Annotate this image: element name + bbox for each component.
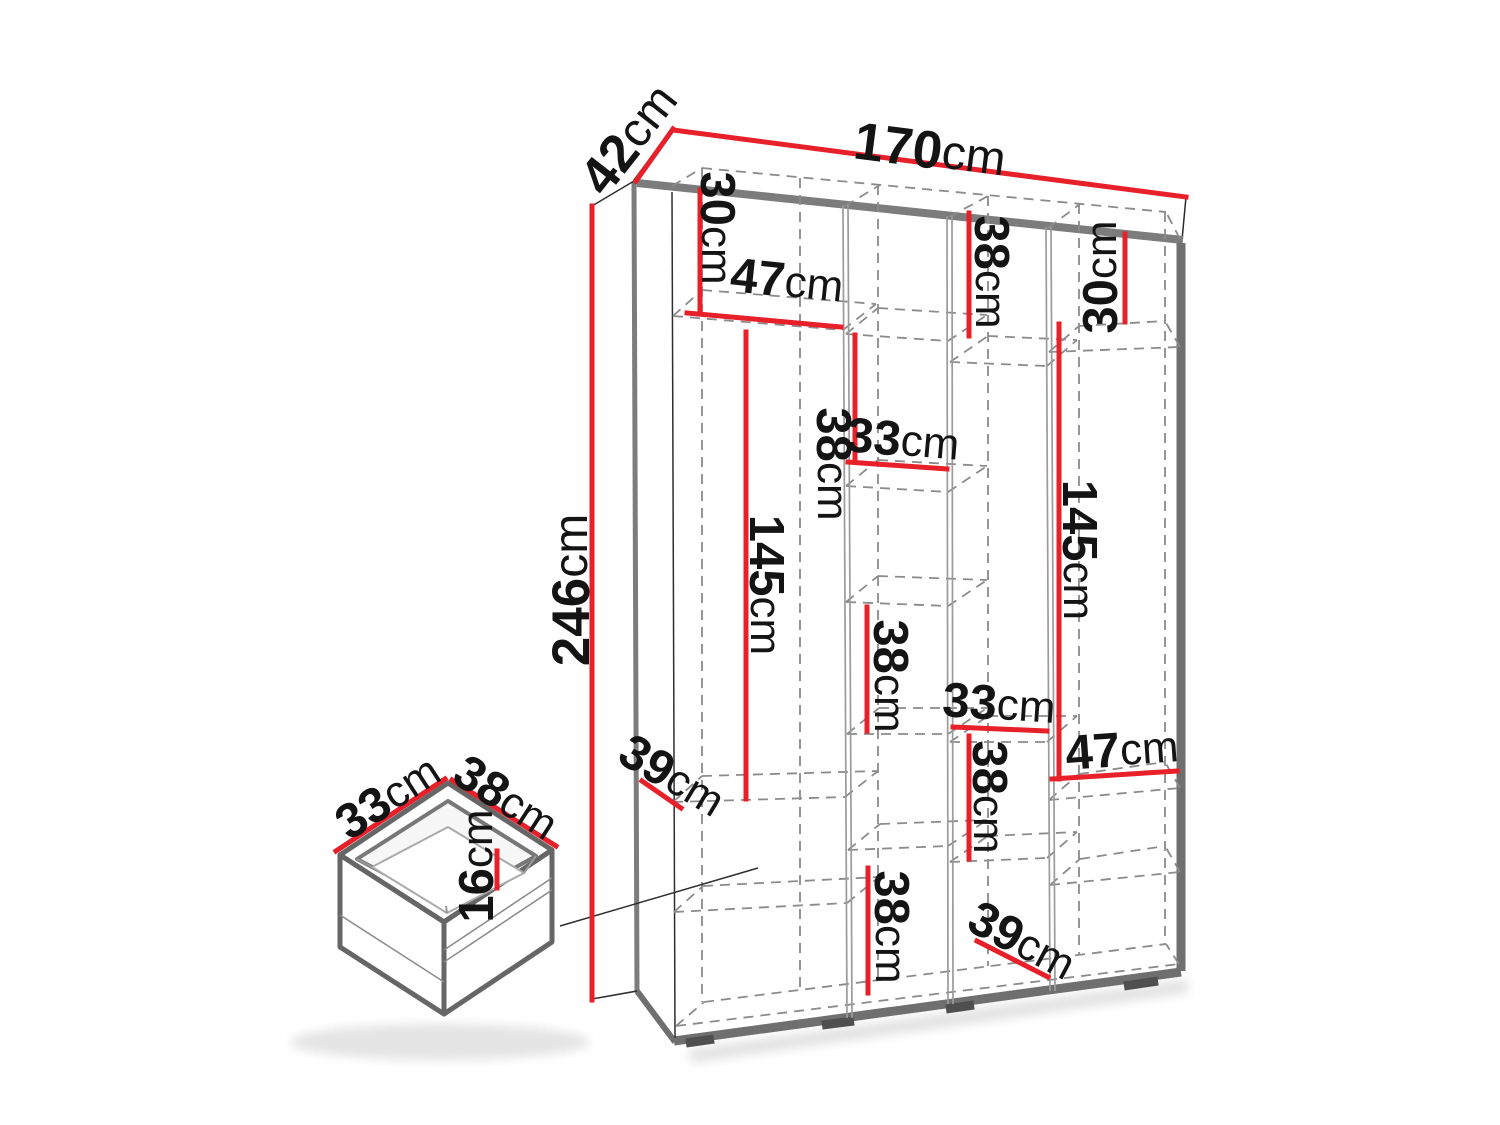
label-col2-33: 33cm (844, 408, 961, 472)
label-col4-145: 145cm (1052, 480, 1106, 620)
label-drawer-16: 16cm (450, 809, 504, 922)
label-col3-39: 39cm (959, 891, 1084, 992)
dim-line-col1-47 (687, 313, 841, 327)
partition-2 (947, 216, 953, 1004)
label-col2-38b: 38cm (863, 619, 917, 732)
label-col4-47: 47cm (1064, 719, 1181, 781)
label-col1-145: 145cm (739, 515, 793, 655)
left-panel-bottom-edge (637, 991, 675, 1042)
bottom-edge (674, 972, 1181, 1041)
height-extension-bottom (592, 991, 637, 999)
label-col1-39: 39cm (610, 724, 735, 829)
label-col2-38c: 38cm (864, 870, 918, 983)
label-height-246: 246cm (542, 514, 601, 666)
wardrobe-dimension-diagram: 170cm 42cm 246cm 30cm 47cm 145cm 39cm 38… (0, 0, 1500, 1125)
drawer-shadow (290, 1024, 590, 1060)
label-col4-30: 30cm (1074, 220, 1128, 333)
label-col3-38-top: 38cm (964, 215, 1018, 328)
label-col3-33: 33cm (941, 673, 1058, 735)
left-outer-edge (634, 182, 637, 991)
partition-3 (1046, 227, 1055, 991)
bottom-shadow (690, 986, 1188, 1056)
label-col3-38: 38cm (962, 740, 1016, 853)
label-col1-47: 47cm (728, 248, 846, 314)
